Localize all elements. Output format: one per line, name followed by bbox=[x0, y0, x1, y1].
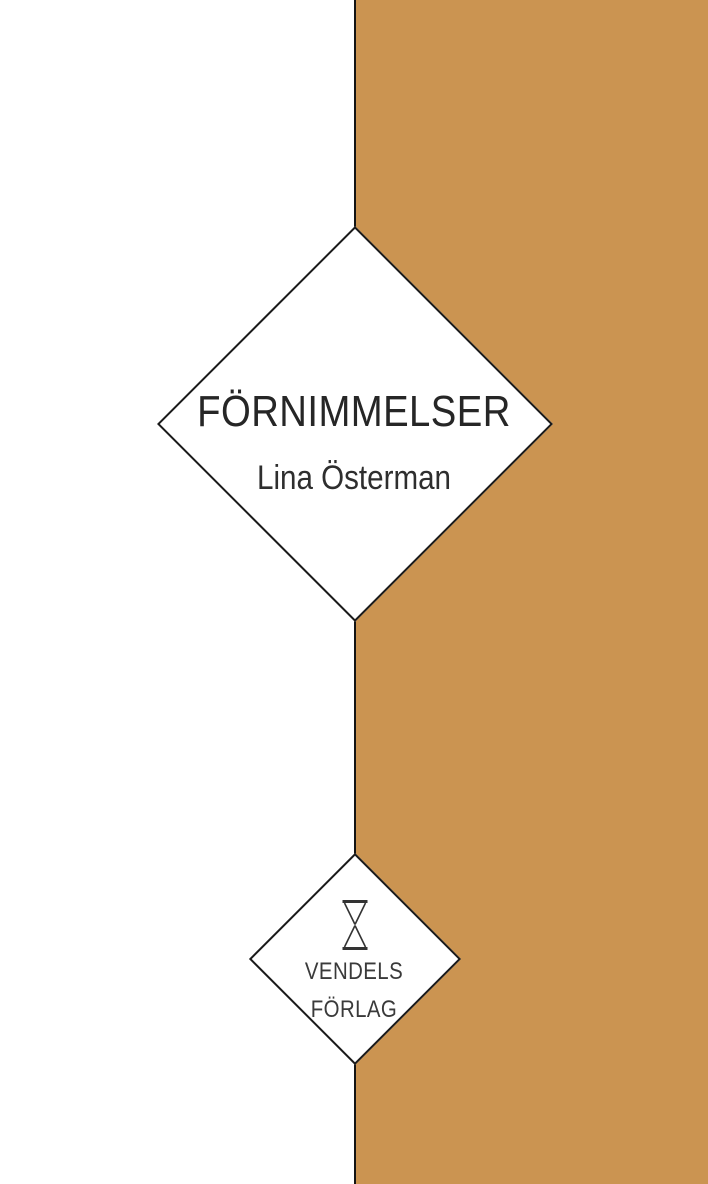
book-title: FÖRNIMMELSER bbox=[46, 390, 662, 434]
book-cover: FÖRNIMMELSER Lina Österman VENDELS FÖRLA… bbox=[0, 0, 708, 1184]
hourglass-icon bbox=[342, 900, 368, 950]
publisher-name-line2: FÖRLAG bbox=[53, 998, 655, 1022]
publisher-name-line1: VENDELS bbox=[53, 960, 655, 984]
book-author: Lina Österman bbox=[46, 461, 662, 495]
